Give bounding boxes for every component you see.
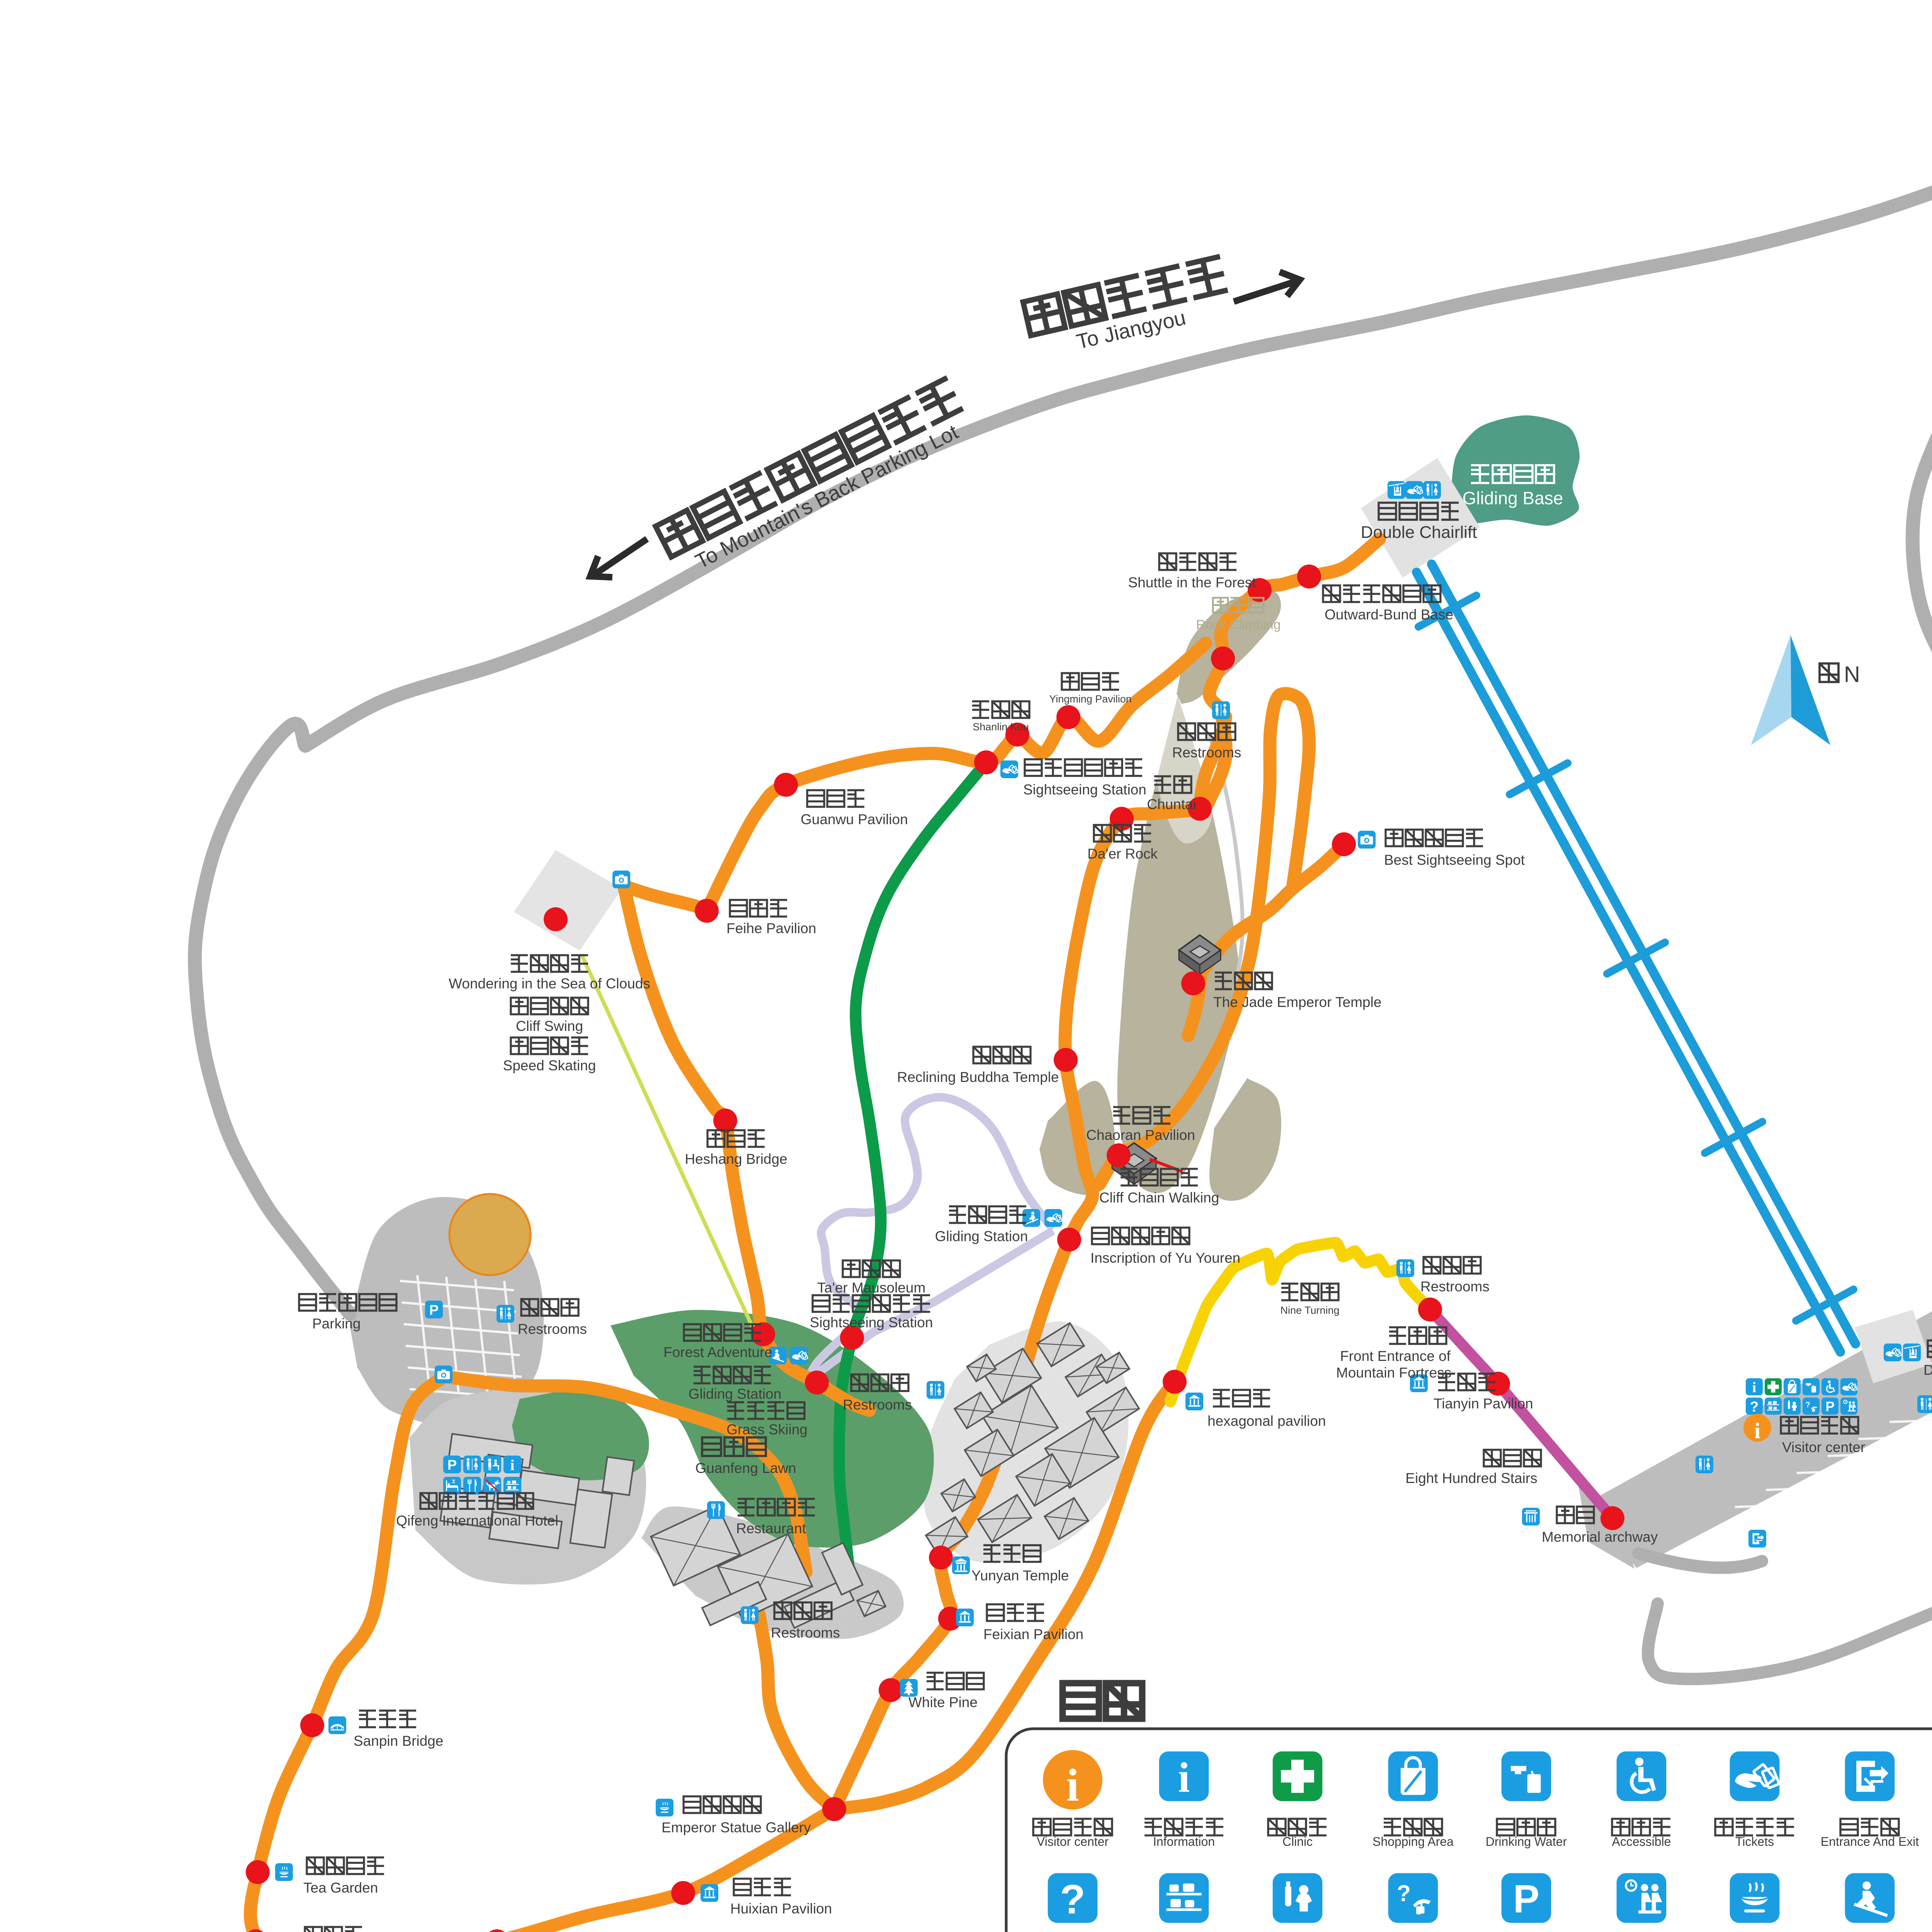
svg-text:Chaoran Pavilion: Chaoran Pavilion [1086,1127,1195,1143]
svg-text:The Jade Emperor Temple: The Jade Emperor Temple [1213,994,1381,1010]
svg-text:Parking: Parking [312,1316,361,1332]
svg-text:hexagonal pavilion: hexagonal pavilion [1207,1413,1326,1429]
svg-text:Inscription of Yu Youren: Inscription of Yu Youren [1090,1250,1240,1266]
svg-text:i: i [1754,1418,1760,1443]
svg-text:Clinic: Clinic [1282,1835,1313,1849]
svg-text:Feixian Pavilion: Feixian Pavilion [983,1626,1083,1642]
svg-text:Huixian Pavilion: Huixian Pavilion [730,1901,832,1917]
svg-text:Emperor Statue Gallery: Emperor Statue Gallery [662,1820,811,1835]
svg-text:Restrooms: Restrooms [518,1321,587,1337]
svg-text:Restrooms: Restrooms [1172,745,1242,760]
svg-text:Cliff Swing: Cliff Swing [516,1018,583,1034]
svg-text:Wondering in the Sea of Clouds: Wondering in the Sea of Clouds [449,976,650,992]
svg-text:Memorial archway: Memorial archway [1542,1529,1658,1545]
svg-text:Gliding Base: Gliding Base [1463,488,1563,508]
svg-text:Shopping Area: Shopping Area [1372,1835,1454,1849]
svg-text:Restrooms: Restrooms [843,1397,912,1413]
svg-text:Restrooms: Restrooms [771,1625,840,1641]
svg-text:Entrance And Exit: Entrance And Exit [1821,1835,1919,1849]
svg-text:Tea Garden: Tea Garden [303,1880,378,1896]
svg-text:Forest Adventure: Forest Adventure [663,1344,772,1360]
svg-text:Yingming Pavilion: Yingming Pavilion [1049,693,1132,705]
svg-text:N: N [1844,662,1860,687]
svg-text:Qifeng International Hotel: Qifeng International Hotel [396,1513,558,1529]
svg-text:Mountain Fortress: Mountain Fortress [1336,1365,1451,1381]
svg-text:Cliff Chain Walking: Cliff Chain Walking [1099,1190,1219,1206]
svg-text:Chuntai: Chuntai [1147,796,1196,812]
svg-text:Restrooms: Restrooms [1420,1279,1490,1294]
svg-text:Grass Skiing: Grass Skiing [726,1422,808,1437]
svg-text:Restaurant: Restaurant [736,1520,806,1536]
svg-text:Sanpin Bridge: Sanpin Bridge [354,1733,443,1749]
svg-text:Double Chairlift: Double Chairlift [1923,1362,1932,1378]
svg-text:Nine Turning: Nine Turning [1280,1304,1339,1316]
svg-text:Information: Information [1153,1835,1215,1849]
svg-text:Best Sightseeing Spot: Best Sightseeing Spot [1384,852,1525,868]
svg-text:Da'er Rock: Da'er Rock [1087,846,1158,862]
svg-text:Eight Hundred Stairs: Eight Hundred Stairs [1405,1470,1537,1486]
svg-text:Ta'er Mausoleum: Ta'er Mausoleum [817,1280,926,1296]
svg-text:Double Chairlift: Double Chairlift [1361,523,1477,542]
svg-text:Sightseeing Station: Sightseeing Station [1023,782,1146,798]
svg-text:Yunyan Temple: Yunyan Temple [971,1568,1069,1583]
svg-text:Shanlin Kou: Shanlin Kou [973,721,1029,733]
svg-text:Reclining Buddha Temple: Reclining Buddha Temple [897,1069,1059,1085]
svg-text:White Pine: White Pine [908,1694,978,1710]
svg-text:i: i [1066,1759,1079,1811]
svg-text:Rock Climbing: Rock Climbing [1196,617,1281,632]
svg-text:Visitor center: Visitor center [1782,1439,1865,1455]
svg-text:Guanfeng Lawn: Guanfeng Lawn [695,1460,796,1476]
svg-text:Sightseeing Station: Sightseeing Station [810,1315,933,1330]
svg-text:Gliding Station: Gliding Station [689,1386,782,1402]
svg-text:Front Entrance of: Front Entrance of [1340,1348,1451,1364]
svg-text:Feihe Pavilion: Feihe Pavilion [726,920,816,936]
svg-text:Outward-Bund Base: Outward-Bund Base [1325,607,1453,622]
svg-text:Guanwu Pavilion: Guanwu Pavilion [801,811,908,827]
svg-text:Heshang Bridge: Heshang Bridge [685,1151,787,1167]
svg-text:Gliding Station: Gliding Station [935,1228,1028,1244]
svg-text:Speed Skating: Speed Skating [503,1058,596,1073]
svg-text:Accessible: Accessible [1612,1835,1671,1849]
svg-text:Shuttle in the Forest: Shuttle in the Forest [1128,575,1256,590]
svg-text:Visitor center: Visitor center [1037,1835,1109,1849]
svg-text:Drinking Water: Drinking Water [1486,1835,1567,1849]
svg-text:Tickets: Tickets [1735,1835,1774,1849]
svg-text:Tianyin Pavilion: Tianyin Pavilion [1434,1396,1533,1412]
